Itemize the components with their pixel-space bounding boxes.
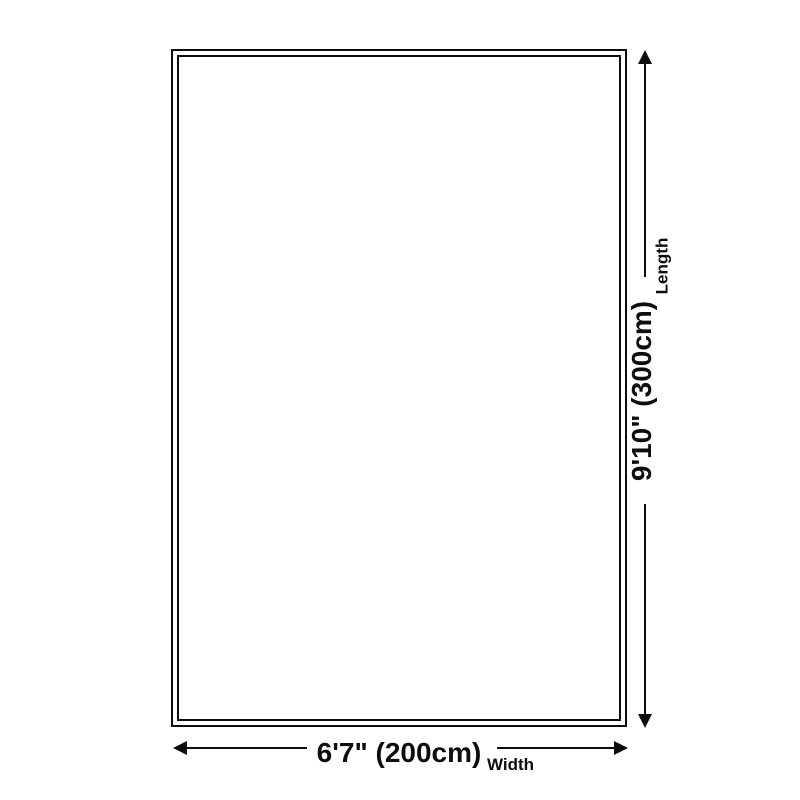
- dimension-diagram: 9'10" (300cm) Length 6'7" (200cm) Width: [0, 0, 800, 800]
- width-dimension-line-right: [497, 747, 614, 749]
- product-outline-inner-border: [177, 55, 621, 721]
- arrow-left-icon: [173, 741, 187, 755]
- product-outline-rect: [171, 49, 627, 727]
- width-dimension-line-left: [186, 747, 307, 749]
- length-dimension-line-top: [644, 62, 646, 277]
- arrow-right-icon: [614, 741, 628, 755]
- length-value: 9'10" (300cm): [628, 301, 656, 481]
- length-dimension-line-bottom: [644, 504, 646, 716]
- arrow-down-icon: [638, 714, 652, 728]
- width-value: 6'7" (200cm): [317, 739, 482, 767]
- length-label: Length: [654, 238, 671, 295]
- width-label: Width: [487, 756, 534, 773]
